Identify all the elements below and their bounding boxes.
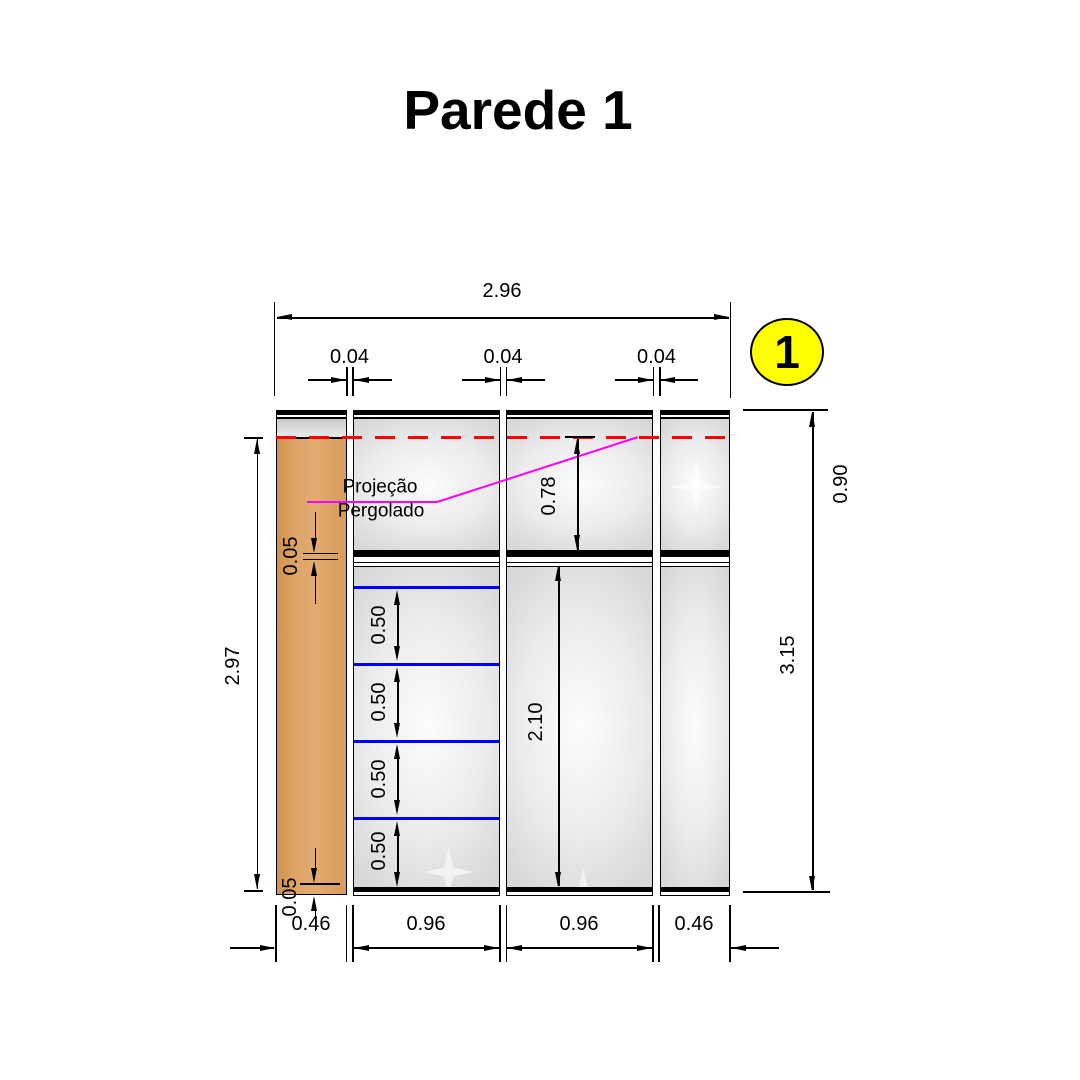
dim-upper-opening: 0.78	[539, 477, 559, 516]
extension-line	[730, 302, 732, 398]
dim-total-width: 2.96	[483, 281, 522, 301]
dim-bottom-width-4: 0.46	[675, 914, 714, 934]
arrowhead-up	[311, 896, 317, 911]
arrowhead-down	[394, 646, 400, 661]
extension-line	[506, 905, 508, 962]
divider-thin-line	[661, 562, 730, 564]
dim-line	[558, 566, 560, 886]
arrowhead-down	[394, 723, 400, 738]
extension-line	[274, 302, 276, 396]
arrowhead-up	[254, 439, 260, 454]
arrowhead-right	[484, 945, 499, 951]
extension-line	[743, 891, 830, 893]
cabinet-divider-bar	[507, 550, 652, 557]
arrowhead-left	[277, 314, 292, 320]
dim-shelf-spacing-1: 0.50	[369, 606, 389, 645]
shelf-line-3	[354, 740, 499, 743]
reflection-sparkle	[671, 461, 723, 513]
arrowhead-up	[555, 566, 561, 581]
pergola-annotation-line2: Pergolado	[338, 502, 425, 521]
arrowhead-up	[311, 561, 317, 576]
drawing-canvas: Parede 1 1	[0, 0, 1080, 1080]
wall-panel-3	[506, 410, 653, 896]
divider-thin-line	[507, 562, 652, 564]
dim-bottom-width-3: 0.96	[560, 914, 599, 934]
wall-number: 1	[774, 325, 800, 379]
arrowhead-right	[260, 945, 275, 951]
dim-tick	[565, 436, 595, 438]
arrowhead-down	[394, 800, 400, 815]
arrowhead-right	[637, 945, 652, 951]
arrowhead-down	[809, 876, 815, 891]
arrowhead-down	[254, 874, 260, 889]
dim-shelf-spacing-4: 0.50	[369, 832, 389, 871]
extension-line	[499, 905, 501, 962]
dim-panel-gap-2: 0.04	[484, 347, 523, 367]
cabinet-divider-bar	[661, 550, 730, 557]
dim-left-height: 2.97	[223, 647, 243, 686]
wall-panel-1	[276, 410, 347, 895]
panel-top-bar	[354, 410, 499, 415]
arrowhead-left	[354, 377, 369, 383]
cabinet-divider-bar	[354, 550, 499, 557]
pergola-projection-dashed-line	[276, 436, 730, 439]
extension-line	[346, 367, 348, 396]
dim-line	[257, 439, 259, 889]
lower-cabinet-4	[661, 567, 730, 887]
arrowhead-right	[331, 377, 346, 383]
page-title: Parede 1	[403, 78, 632, 142]
arrowhead-right	[485, 377, 500, 383]
dim-lower-opening: 2.10	[526, 703, 546, 742]
dim-bottom-width-2: 0.96	[407, 914, 446, 934]
dim-base-height: 0.05	[280, 878, 300, 917]
dim-line	[397, 835, 399, 872]
arrowhead-down	[394, 872, 400, 887]
dim-line	[397, 758, 399, 800]
arrowhead-right	[714, 314, 729, 320]
arrowhead-down	[555, 872, 561, 887]
dim-line	[315, 512, 317, 538]
panel-top-bar	[661, 410, 730, 415]
dim-tick	[300, 883, 340, 885]
dim-line	[354, 947, 499, 949]
dim-bottom-width-1: 0.46	[292, 914, 331, 934]
panel-bottom-bar	[661, 887, 730, 893]
dim-tick	[303, 553, 338, 555]
extension-line	[352, 905, 354, 962]
panel-bottom-bar	[507, 887, 652, 893]
panel-bottom-bar	[354, 887, 499, 893]
pergola-annotation-line1: Projeção	[343, 478, 418, 497]
dim-divider-thickness: 0.05	[281, 537, 301, 576]
dim-shelf-spacing-3: 0.50	[369, 760, 389, 799]
dim-line	[577, 439, 579, 550]
dim-line	[397, 603, 399, 648]
arrowhead-left	[507, 377, 522, 383]
arrowhead-up	[394, 667, 400, 682]
dim-tick	[303, 559, 338, 561]
panel-top-cap	[277, 419, 346, 438]
dim-line	[812, 412, 814, 890]
shelf-line-2	[354, 663, 499, 666]
arrowhead-down	[311, 868, 317, 883]
extension-line	[653, 367, 655, 396]
arrowhead-up	[809, 412, 815, 427]
panel-bottom-line	[661, 895, 730, 897]
wall-panel-4	[660, 410, 731, 896]
arrowhead-down	[574, 535, 580, 550]
dim-line	[315, 575, 317, 604]
arrowhead-left	[507, 945, 522, 951]
dim-panel-gap-3: 0.04	[637, 347, 676, 367]
extension-line	[658, 905, 660, 962]
shelf-line-4	[354, 817, 499, 820]
dim-shelf-spacing-2: 0.50	[369, 683, 389, 722]
dim-tick	[244, 890, 263, 892]
dim-panel-gap-1: 0.04	[330, 347, 369, 367]
panel-bottom-line	[507, 895, 652, 897]
extension-line	[743, 409, 828, 411]
arrowhead-up	[394, 821, 400, 836]
wall-number-badge: 1	[750, 318, 824, 386]
dim-line	[397, 681, 399, 723]
arrowhead-down	[311, 538, 317, 553]
dim-line	[507, 947, 652, 949]
arrowhead-left	[660, 377, 675, 383]
arrowhead-left	[731, 945, 746, 951]
divider-thin-line	[354, 562, 499, 564]
shelf-line-1	[354, 586, 499, 589]
arrowhead-right	[638, 377, 653, 383]
highlight-panel	[277, 439, 346, 895]
panel-top-bar	[507, 410, 652, 415]
arrowhead-left	[354, 945, 369, 951]
panel-top-bar	[277, 410, 346, 415]
arrowhead-up	[574, 439, 580, 454]
panel-bottom-line	[354, 895, 499, 897]
extension-line	[652, 905, 654, 962]
extension-line	[729, 905, 731, 962]
extension-line	[346, 905, 348, 962]
dim-total-height: 3.15	[778, 636, 798, 675]
arrowhead-up	[394, 744, 400, 759]
extension-line	[275, 905, 277, 962]
dim-line	[277, 317, 729, 319]
dim-top-section-height: 0.90	[831, 465, 851, 504]
dim-line	[315, 848, 317, 868]
extension-line	[500, 367, 502, 396]
